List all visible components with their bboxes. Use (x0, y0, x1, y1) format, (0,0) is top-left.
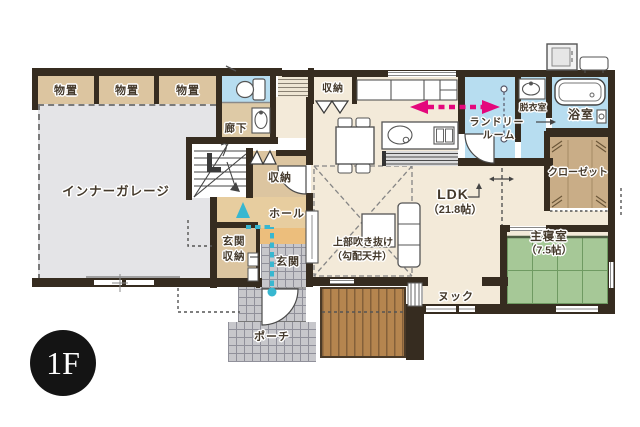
label-corridor: 廊下 (225, 121, 248, 136)
label-entrance-storage-1: 玄関 (223, 234, 246, 249)
dining-table-icon (336, 118, 374, 173)
cupboard-icon (357, 80, 457, 100)
label-nook: ヌック (438, 288, 474, 304)
label-stair-closet: 収納 (268, 169, 292, 185)
kitchen-island-icon (382, 122, 458, 166)
label-void-2: （勾配天井） (332, 248, 392, 263)
label-storage-3: 物置 (176, 82, 200, 98)
washbasin-dressing-icon (519, 79, 545, 99)
label-void-1: 上部吹き抜け (333, 234, 393, 249)
label-hall: ホール (269, 205, 305, 221)
stairs-icon (194, 144, 246, 197)
label-laundry-2: ルーム (483, 127, 516, 142)
floor-badge: 1F (30, 330, 96, 396)
label-closet: クローゼット (548, 164, 608, 179)
toilet-icon (237, 79, 266, 100)
washbasin-corridor-icon (252, 108, 270, 133)
label-storage-2: 物置 (115, 82, 139, 98)
label-garage: インナーガレージ (62, 181, 170, 200)
label-ldk: LDK (437, 186, 469, 202)
label-bath: 浴室 (568, 106, 594, 123)
label-storage-1: 物置 (54, 82, 78, 98)
plan-linework (0, 0, 640, 427)
label-entrance: 玄関 (276, 253, 300, 269)
label-entrance-storage-2: 収納 (223, 249, 246, 264)
label-porch: ポーチ (254, 328, 290, 344)
tv-board-icon (306, 211, 318, 263)
water-heater-icon (547, 44, 577, 70)
label-kitchen-closet: 収納 (322, 80, 344, 95)
label-dressing: 脱衣室 (519, 101, 546, 114)
label-bedroom-size: （7.5帖） (526, 243, 572, 258)
label-ldk-size: （21.8帖） (428, 201, 482, 217)
pink-flow-arrow (410, 100, 500, 114)
floor-plan-1f: 物置 物置 物置 廊下 インナーガレージ 収納 収納 ランドリー ルーム 脱衣室… (0, 0, 640, 427)
